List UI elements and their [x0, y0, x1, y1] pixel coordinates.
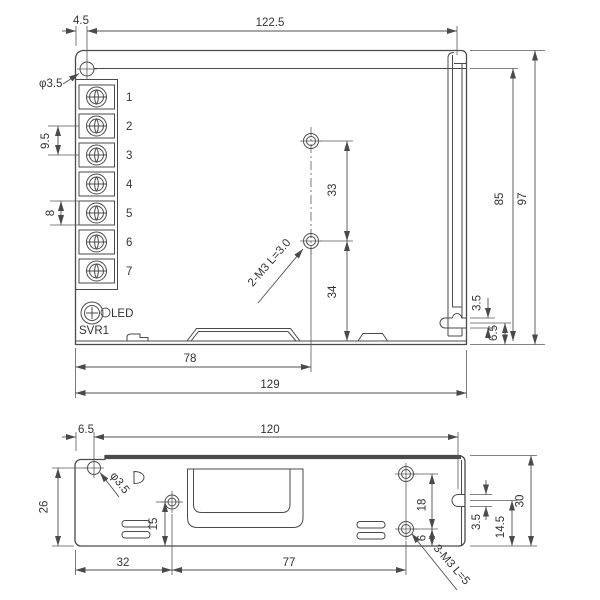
- case-outline: [76, 51, 467, 345]
- terminal-5: 5: [79, 201, 132, 225]
- terminal-4: 4: [79, 172, 133, 196]
- dim-phi-3-5: φ3.5: [39, 78, 62, 90]
- bottom-profile-feet: [127, 329, 388, 342]
- vent-slots: [122, 521, 385, 540]
- terminal-block: 1 2 3 4: [76, 80, 134, 290]
- screw-icon: [87, 90, 106, 104]
- dim-phi-3-5-front: φ3.5: [107, 470, 131, 496]
- terminal-7: 7: [79, 259, 132, 283]
- screw-icon: [87, 177, 106, 191]
- dim-6-5-side: 6.5: [488, 325, 500, 341]
- dim-26: 26: [39, 501, 51, 514]
- adjustment-area: LED SVR1: [79, 302, 133, 337]
- led-label: LED: [111, 308, 133, 320]
- screw-icon: [87, 119, 106, 133]
- screw-icon: [87, 206, 106, 220]
- dim-32: 32: [117, 557, 130, 569]
- dim-6: 6: [417, 535, 429, 541]
- cover-edge-band: [105, 456, 461, 460]
- terminal-number: 2: [126, 121, 132, 133]
- dim-85: 85: [494, 193, 506, 206]
- dim-97: 97: [517, 193, 529, 206]
- psu-dimension-drawing: 1 2 3 4: [0, 0, 600, 600]
- d-shaped-cutout: [134, 472, 144, 484]
- terminal-number: 4: [126, 179, 133, 191]
- front-view: 6.5 120 φ3.5 26 15 32 77 18 6 3.5: [39, 424, 538, 590]
- dim-6-5-front: 6.5: [78, 424, 94, 436]
- note-2-m3: 2-M3 L=3.0: [246, 237, 293, 289]
- terminal-2: 2: [79, 114, 132, 138]
- side-mounting-holes: [300, 127, 322, 255]
- svr-label: SVR1: [79, 325, 109, 337]
- dim-129: 129: [260, 379, 279, 391]
- terminal-number: 6: [126, 237, 132, 249]
- screw-icon: [87, 235, 106, 249]
- dim-18: 18: [417, 499, 429, 512]
- dim-120: 120: [260, 424, 279, 436]
- side-view: 1 2 3 4: [39, 15, 545, 398]
- terminal-6: 6: [79, 230, 132, 254]
- led-indicator-icon: [101, 308, 110, 317]
- terminal-window-cutout: [188, 469, 304, 528]
- dim-4-5: 4.5: [73, 15, 89, 27]
- terminal-number: 1: [126, 92, 132, 104]
- terminal-number: 3: [126, 150, 132, 162]
- dim-34: 34: [327, 285, 339, 298]
- front-mounting-notch: [452, 495, 465, 507]
- dim-33: 33: [327, 184, 339, 197]
- dim-78: 78: [184, 353, 197, 365]
- terminal-1: 1: [79, 85, 132, 109]
- dim-77: 77: [283, 557, 296, 569]
- cover-edge-strip: [440, 53, 466, 337]
- dim-122-5: 122.5: [256, 17, 285, 29]
- dim-3-5-side: 3.5: [472, 295, 484, 311]
- mechanical-drawing-page: 1 2 3 4: [0, 0, 600, 600]
- dim-3-5-front: 3.5: [471, 514, 483, 530]
- terminal-3: 3: [79, 143, 132, 167]
- dim-14-5: 14.5: [495, 516, 507, 538]
- screw-icon: [87, 264, 106, 278]
- dim-9-5: 9.5: [40, 133, 52, 149]
- dim-8: 8: [45, 210, 57, 216]
- front-right-holes: [395, 463, 417, 540]
- dim-15: 15: [148, 518, 160, 531]
- screw-icon: [87, 148, 106, 162]
- terminal-number: 7: [126, 266, 132, 278]
- terminal-number: 5: [126, 208, 132, 220]
- corner-mounting-hole: [77, 59, 97, 79]
- dim-30: 30: [515, 495, 527, 508]
